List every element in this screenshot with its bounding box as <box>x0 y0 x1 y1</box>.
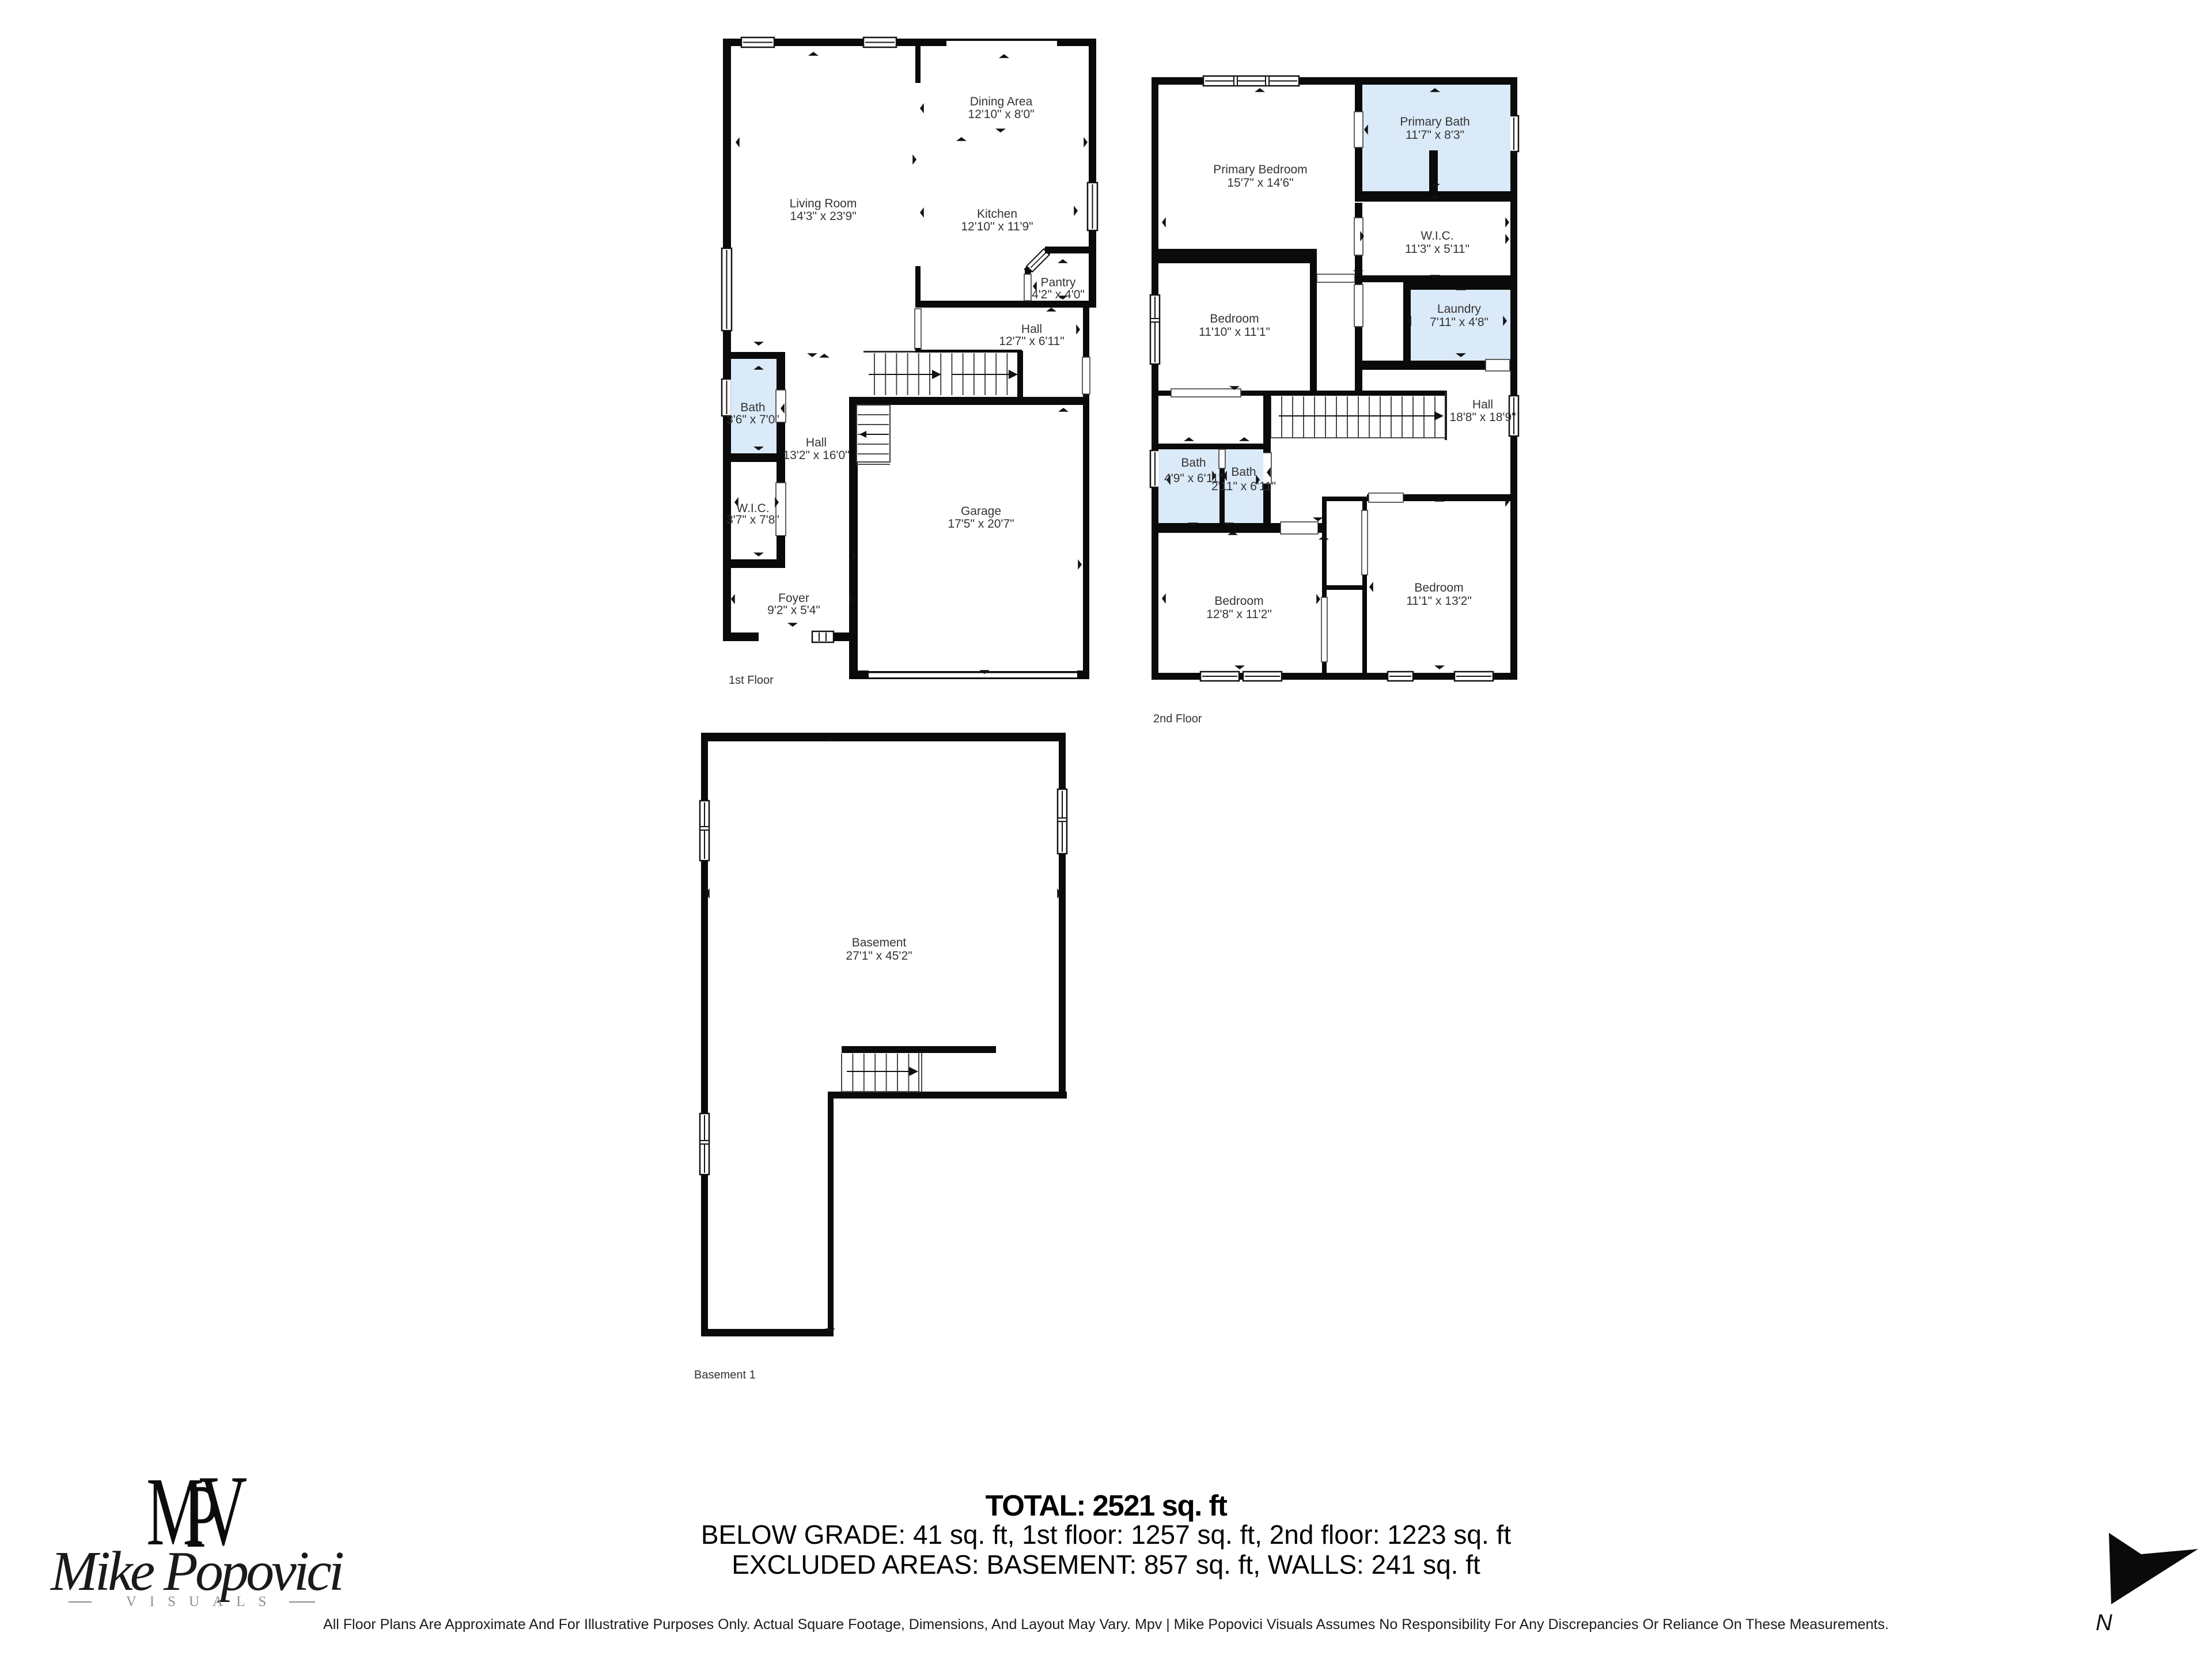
svg-text:4'2" x 4'0": 4'2" x 4'0" <box>1032 288 1085 301</box>
svg-text:Bath: Bath <box>1231 465 1256 479</box>
svg-text:Hall: Hall <box>1021 323 1042 336</box>
svg-text:11'10" x 11'1": 11'10" x 11'1" <box>1199 325 1270 339</box>
svg-text:Bath: Bath <box>1181 456 1206 469</box>
svg-text:Kitchen: Kitchen <box>977 207 1017 221</box>
svg-text:12'10" x 11'9": 12'10" x 11'9" <box>961 220 1033 233</box>
svg-text:3'7" x 7'8": 3'7" x 7'8" <box>726 513 779 527</box>
svg-text:Bedroom: Bedroom <box>1214 594 1263 608</box>
svg-text:Hall: Hall <box>806 436 827 449</box>
svg-text:Living Room: Living Room <box>790 197 857 210</box>
svg-text:Primary Bath: Primary Bath <box>1400 115 1469 128</box>
svg-text:14'3" x 23'9": 14'3" x 23'9" <box>790 210 856 223</box>
svg-text:Bedroom: Bedroom <box>1414 581 1463 594</box>
svg-text:11'1" x 13'2": 11'1" x 13'2" <box>1406 594 1472 608</box>
svg-text:3'6" x 7'0": 3'6" x 7'0" <box>726 413 779 426</box>
svg-text:11'3" x 5'11": 11'3" x 5'11" <box>1405 243 1469 256</box>
svg-text:Laundry: Laundry <box>1437 302 1481 316</box>
svg-text:Basement: Basement <box>852 936 907 949</box>
svg-text:2'11" x 6'11": 2'11" x 6'11" <box>1211 480 1276 493</box>
svg-text:Dining Area: Dining Area <box>970 95 1033 108</box>
svg-text:Primary Bedroom: Primary Bedroom <box>1213 163 1307 176</box>
svg-text:15'7" x 14'6": 15'7" x 14'6" <box>1227 176 1293 190</box>
svg-text:17'5" x 20'7": 17'5" x 20'7" <box>948 517 1014 531</box>
svg-text:Foyer: Foyer <box>778 592 809 605</box>
svg-text:W.I.C.: W.I.C. <box>1421 229 1453 243</box>
svg-text:9'2" x 5'4": 9'2" x 5'4" <box>767 604 820 617</box>
svg-text:7'11" x 4'8": 7'11" x 4'8" <box>1430 316 1488 329</box>
svg-text:Hall: Hall <box>1472 398 1493 411</box>
svg-text:2nd Floor: 2nd Floor <box>1153 713 1202 725</box>
svg-text:12'10" x 8'0": 12'10" x 8'0" <box>968 108 1034 121</box>
svg-text:27'1" x 45'2": 27'1" x 45'2" <box>846 949 912 963</box>
svg-text:Bedroom: Bedroom <box>1210 312 1259 325</box>
svg-text:Bath: Bath <box>740 401 765 414</box>
svg-text:13'2" x 16'0": 13'2" x 16'0" <box>783 449 849 462</box>
svg-text:Pantry: Pantry <box>1041 276 1076 289</box>
svg-text:Garage: Garage <box>961 505 1001 518</box>
svg-text:18'8" x 18'9": 18'8" x 18'9" <box>1449 411 1516 424</box>
svg-text:12'7" x 6'11": 12'7" x 6'11" <box>999 335 1065 348</box>
svg-text:VISUALS: VISUALS <box>126 1594 280 1609</box>
svg-text:1st Floor: 1st Floor <box>729 674 774 687</box>
svg-text:Basement 1: Basement 1 <box>694 1369 756 1381</box>
svg-text:12'8" x 11'2": 12'8" x 11'2" <box>1206 608 1272 621</box>
svg-text:11'7" x 8'3": 11'7" x 8'3" <box>1406 128 1464 142</box>
